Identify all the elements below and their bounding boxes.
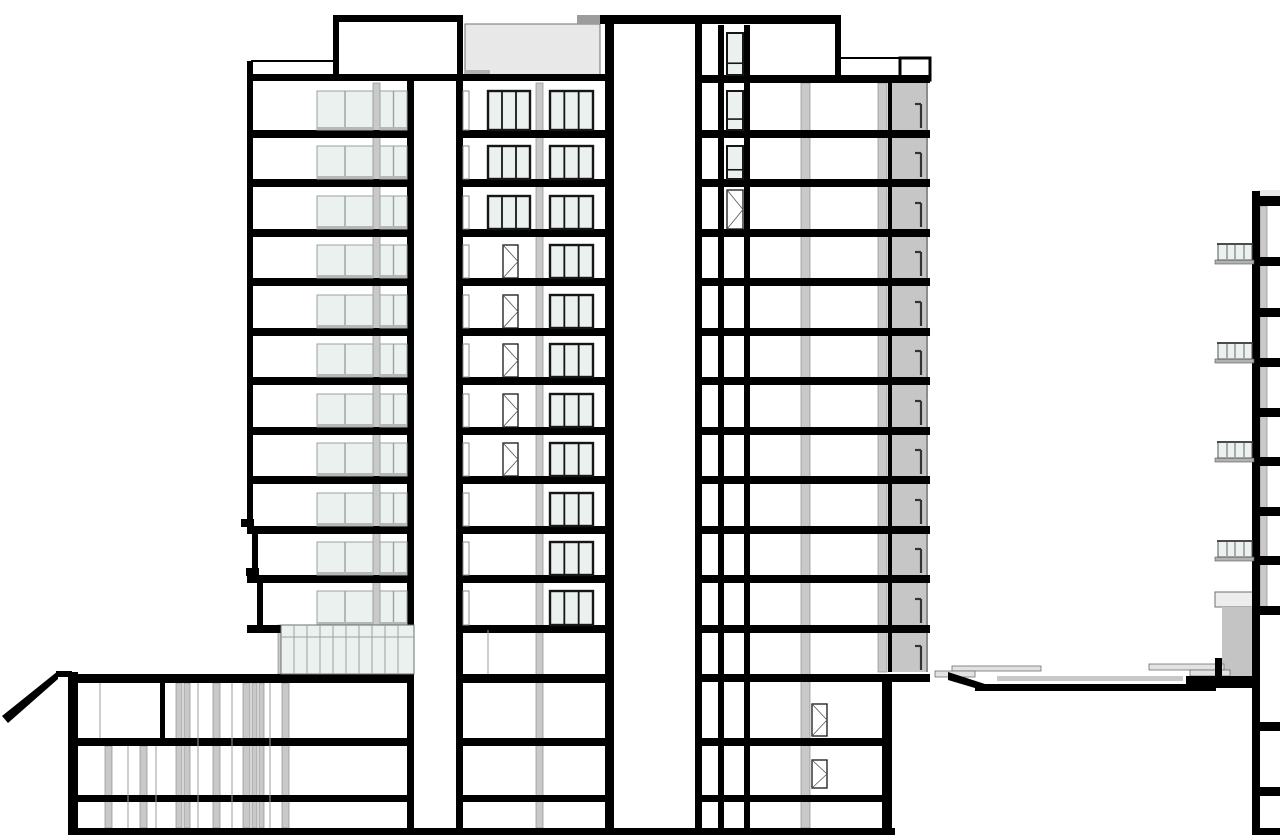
door-symbol: [812, 760, 827, 788]
wall-section: [456, 81, 463, 828]
floor-slab: [247, 377, 414, 385]
floor-slab: [68, 795, 414, 802]
wall-section: [1215, 658, 1222, 688]
shaded-surface: [1222, 607, 1253, 677]
floor-slab: [456, 427, 613, 435]
column-stripe: [140, 746, 147, 828]
wall-section: [882, 674, 892, 835]
window-slit: [463, 146, 469, 179]
window-framed: [488, 91, 530, 130]
floor-slab: [695, 738, 892, 746]
architectural-section-view: [0, 0, 1280, 835]
window-framed: [550, 196, 593, 229]
window-slit: [463, 591, 469, 625]
wall-section: [695, 15, 702, 835]
floor-slab: [695, 328, 930, 336]
window-sill: [380, 523, 407, 526]
floor-slab: [695, 377, 930, 385]
window-sill: [317, 127, 373, 130]
window-sill: [317, 226, 373, 229]
column-stripe: [282, 683, 289, 828]
floor-slab: [695, 75, 930, 83]
deck-planter: [952, 666, 1041, 671]
floor-slab: [695, 575, 930, 583]
window-slit: [463, 245, 469, 278]
floor-slab: [695, 674, 930, 682]
wall-section: [744, 25, 750, 828]
floor-slab: [695, 625, 930, 633]
window-framed: [550, 394, 593, 427]
window-sill: [380, 226, 407, 229]
building-section-drawing: [0, 0, 1280, 835]
window-sill: [317, 374, 373, 377]
wall-section: [247, 61, 253, 526]
window-slit: [463, 394, 469, 427]
deck-planter: [1149, 664, 1224, 670]
balcony-slab: [1215, 557, 1254, 561]
column-stripe: [252, 683, 257, 828]
window-framed: [550, 542, 593, 575]
window-sill: [317, 275, 373, 278]
floor-slab: [456, 526, 613, 534]
column-stripe: [105, 746, 112, 828]
door-symbol: [727, 190, 743, 229]
column-stripe: [213, 683, 220, 828]
wall-section: [718, 25, 724, 828]
window-sill: [380, 325, 407, 328]
floor-slab: [695, 476, 930, 484]
window-framed: [550, 591, 593, 625]
window-slit: [463, 295, 469, 328]
wall-section: [1252, 191, 1260, 835]
wall-section: [835, 15, 841, 83]
window-framed: [550, 344, 593, 377]
window-sill: [380, 127, 407, 130]
window-small: [727, 33, 743, 75]
column-stripe: [1260, 206, 1267, 607]
window-framed: [550, 493, 593, 526]
floor-slab: [975, 684, 1216, 691]
window-framed: [550, 245, 593, 278]
floor-slab: [456, 278, 613, 286]
window-slit: [463, 91, 469, 130]
floor-slab: [247, 278, 414, 286]
wall-section: [605, 15, 614, 835]
floor-slab: [1260, 257, 1280, 266]
column-stripe: [536, 83, 543, 828]
window-slit: [463, 493, 469, 526]
window-slit: [463, 443, 469, 476]
window-framed: [488, 146, 530, 179]
wall-section: [333, 15, 339, 75]
floor-slab: [456, 328, 613, 336]
floor-slab: [247, 526, 414, 534]
floor-slab: [695, 795, 892, 802]
floor-slab: [247, 130, 414, 138]
floor-slab: [68, 674, 414, 683]
column-stripe: [184, 683, 190, 828]
window-framed: [550, 295, 593, 328]
window-framed: [550, 146, 593, 179]
balcony-slab: [1215, 458, 1254, 462]
floor-slab: [1260, 606, 1280, 615]
floor-slab: [1260, 408, 1280, 417]
balcony-slab: [1215, 260, 1254, 264]
floor-slab: [1260, 556, 1280, 565]
floor-slab: [456, 575, 613, 583]
wall-section: [257, 575, 263, 625]
storefront-glazing: [281, 625, 414, 674]
floor-slab: [456, 625, 613, 633]
wall-section: [252, 526, 258, 575]
floor-slab: [456, 476, 613, 484]
column-stripe: [259, 683, 264, 828]
column-stripe: [373, 83, 380, 625]
floor-slab: [247, 328, 414, 336]
window-slit: [463, 542, 469, 575]
floor-slab: [695, 427, 930, 435]
wall-section: [68, 672, 78, 835]
window-sill: [317, 176, 373, 179]
window-framed: [550, 443, 593, 476]
floor-slab: [695, 229, 930, 237]
window-sill: [317, 572, 373, 575]
window-sill: [380, 424, 407, 427]
shaded-surface: [1215, 592, 1253, 607]
window-sill: [380, 176, 407, 179]
floor-slab: [68, 828, 895, 835]
door-symbol: [503, 394, 518, 427]
window-sill: [317, 473, 373, 476]
door-symbol: [503, 245, 518, 278]
floor-slab: [1260, 787, 1280, 796]
floor-slab: [456, 738, 613, 746]
window-sill: [380, 275, 407, 278]
floor-slab: [247, 476, 414, 484]
floor-slab: [251, 74, 613, 81]
window-sill: [380, 572, 407, 575]
floor-slab: [695, 179, 930, 187]
window-small: [727, 146, 743, 179]
balcony-slab: [1215, 359, 1254, 363]
window-slit: [463, 196, 469, 229]
floor-slab: [1260, 722, 1280, 731]
floor-slab: [456, 674, 613, 683]
column-stripe: [801, 83, 810, 828]
floor-slab: [1260, 358, 1280, 367]
floor-slab: [68, 738, 414, 746]
floor-slab: [247, 179, 414, 187]
window-sill: [317, 523, 373, 526]
floor-slab: [247, 229, 414, 237]
wall-section: [160, 683, 165, 738]
deck-planter: [1190, 670, 1230, 676]
wall-section: [457, 15, 463, 81]
floor-slab: [456, 795, 613, 802]
window-sill: [380, 473, 407, 476]
sloped-slab: [2, 671, 58, 723]
floor-slab: [1260, 507, 1280, 516]
door-symbol: [503, 443, 518, 476]
window-small: [727, 91, 743, 130]
wall-section: [888, 83, 892, 672]
window-slit: [463, 344, 469, 377]
window-sill: [317, 325, 373, 328]
floor-slab: [695, 526, 930, 534]
window-sill: [380, 374, 407, 377]
floor-slab: [247, 575, 414, 583]
window-framed: [550, 91, 593, 130]
floor-slab: [695, 278, 930, 286]
window-framed: [488, 196, 530, 229]
floor-slab: [695, 130, 930, 138]
floor-slab: [1260, 308, 1280, 317]
floor-slab: [247, 427, 414, 435]
floor-slab: [1260, 457, 1280, 466]
door-symbol: [812, 704, 827, 736]
floor-slab: [456, 377, 613, 385]
shaded-surface: [1258, 190, 1280, 196]
shaded-surface: [465, 24, 600, 77]
window-sill: [317, 424, 373, 427]
floor-slab: [600, 15, 841, 24]
door-symbol: [503, 295, 518, 328]
door-symbol: [503, 344, 518, 377]
column-stripe: [243, 683, 250, 828]
wall-section: [407, 81, 414, 828]
shaded-surface: [577, 15, 603, 24]
shaded-surface: [997, 676, 1183, 681]
column-stripe: [176, 683, 182, 828]
floor-slab: [333, 15, 463, 22]
